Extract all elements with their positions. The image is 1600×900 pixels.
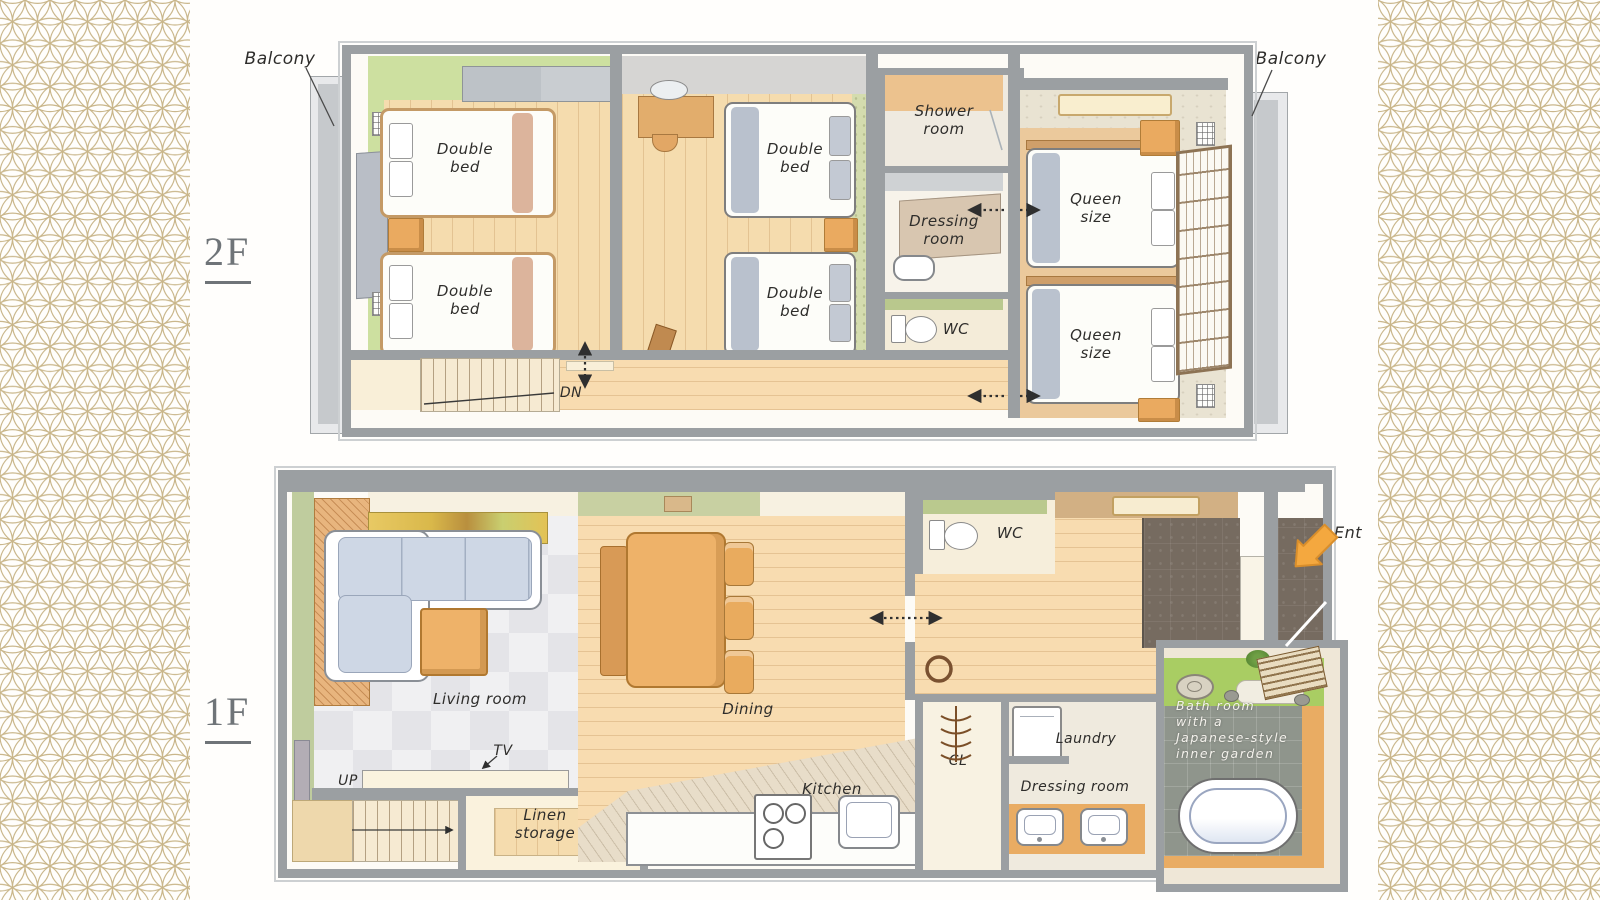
left-ornament-pattern [0,0,190,900]
living-room-label: Living room [400,690,560,708]
ottoman [420,608,488,676]
laundry-label: Laundry [1040,730,1132,748]
sink-icon [1080,808,1128,846]
ceiling-light [1058,94,1172,116]
corridor-wood-floor [558,360,1008,410]
wall [1008,54,1020,418]
hall-floor [1055,518,1142,576]
bath-deck [1164,856,1324,868]
wall-window-icon [1196,122,1215,146]
dining-chair [724,650,754,694]
wall [610,54,622,352]
wardrobe [462,66,612,102]
nightstand [1138,398,1180,422]
bathroom-label: Bath roomwith aJapanese-styleinner garde… [1176,698,1318,770]
stone-basin-icon [1176,674,1214,700]
toilet-tank-icon [891,315,906,343]
balcony-left-label: Balcony [244,50,316,68]
mirror-icon [650,80,688,100]
shower-room-label: Showerroom [886,102,1002,138]
wc-2f-label: WC [934,320,978,338]
wall [287,479,1305,492]
stair-landing [292,800,354,862]
floorplan-page: 2F 1F Balcony Balcony Doublebed Doublebe… [0,0,1600,900]
hall-floor [915,574,1158,694]
double-bed-4-label: Doublebed [735,284,855,320]
wc-1f-label: WC [988,524,1032,542]
nightstand [1140,120,1180,156]
right-ornament-pattern [1378,0,1600,900]
dressing-room-1f-label: Dressing room [1008,778,1142,796]
dining-table [626,532,726,688]
floor-2f-label: 2F [204,228,250,275]
floor-2f-underline [205,281,251,284]
shoji-screen [1176,145,1232,376]
stove-icon [754,794,812,860]
queen-bed-1-label: Queensize [1040,190,1152,226]
dining-wall-top2 [760,492,905,516]
genkan-tile [1142,518,1240,648]
balcony-left-deck [318,84,338,424]
double-bed-3-label: Doublebed [735,140,855,176]
up-label: UP [332,772,364,790]
dining-chair [724,596,754,640]
dining-chair [724,542,754,586]
double-bed-1-label: Doublebed [405,140,525,176]
sink-icon [1016,808,1064,846]
door-threshold [566,361,614,371]
wall-window-icon [1196,384,1215,408]
floor-1f-underline [205,741,251,744]
wall [905,642,915,700]
floor-1f-label: 1F [204,688,250,735]
door-slab [294,740,310,804]
balcony-right-deck [1254,100,1278,424]
dn-label: DN [552,384,590,402]
staircase-up [352,800,460,862]
wall [866,54,878,352]
nightstand [824,218,858,252]
wall [1300,470,1332,484]
entry-closet [1240,556,1266,650]
dining-bench [600,546,628,676]
queen-bed-2-label: Queensize [1040,326,1152,362]
kitchen-sink-icon [838,795,900,849]
bathtub-icon [1178,778,1298,854]
dressing-room-2f-label: Dressingroom [886,212,1002,248]
ent-label: Ent [1334,524,1378,542]
wall-vent [664,496,692,512]
cl-label: CL [938,752,978,770]
wall [1264,492,1278,658]
toilet-bowl-icon [905,316,937,343]
sofa-cushions [338,537,532,601]
dining-label: Dining [700,700,796,718]
nightstand [388,218,424,252]
toilet-bowl-icon [944,522,978,550]
desk [638,96,714,138]
sofa-cushion [338,595,412,673]
wall [1018,78,1228,90]
wall [905,492,915,596]
toilet-tank-icon [929,520,945,550]
tv-label: TV [486,742,520,760]
ceiling-light [1112,496,1200,516]
balcony-right-label: Balcony [1254,50,1328,68]
entrance-vestibule [1278,518,1323,658]
staircase-down [420,358,560,412]
double-bed-2-label: Doublebed [405,282,525,318]
